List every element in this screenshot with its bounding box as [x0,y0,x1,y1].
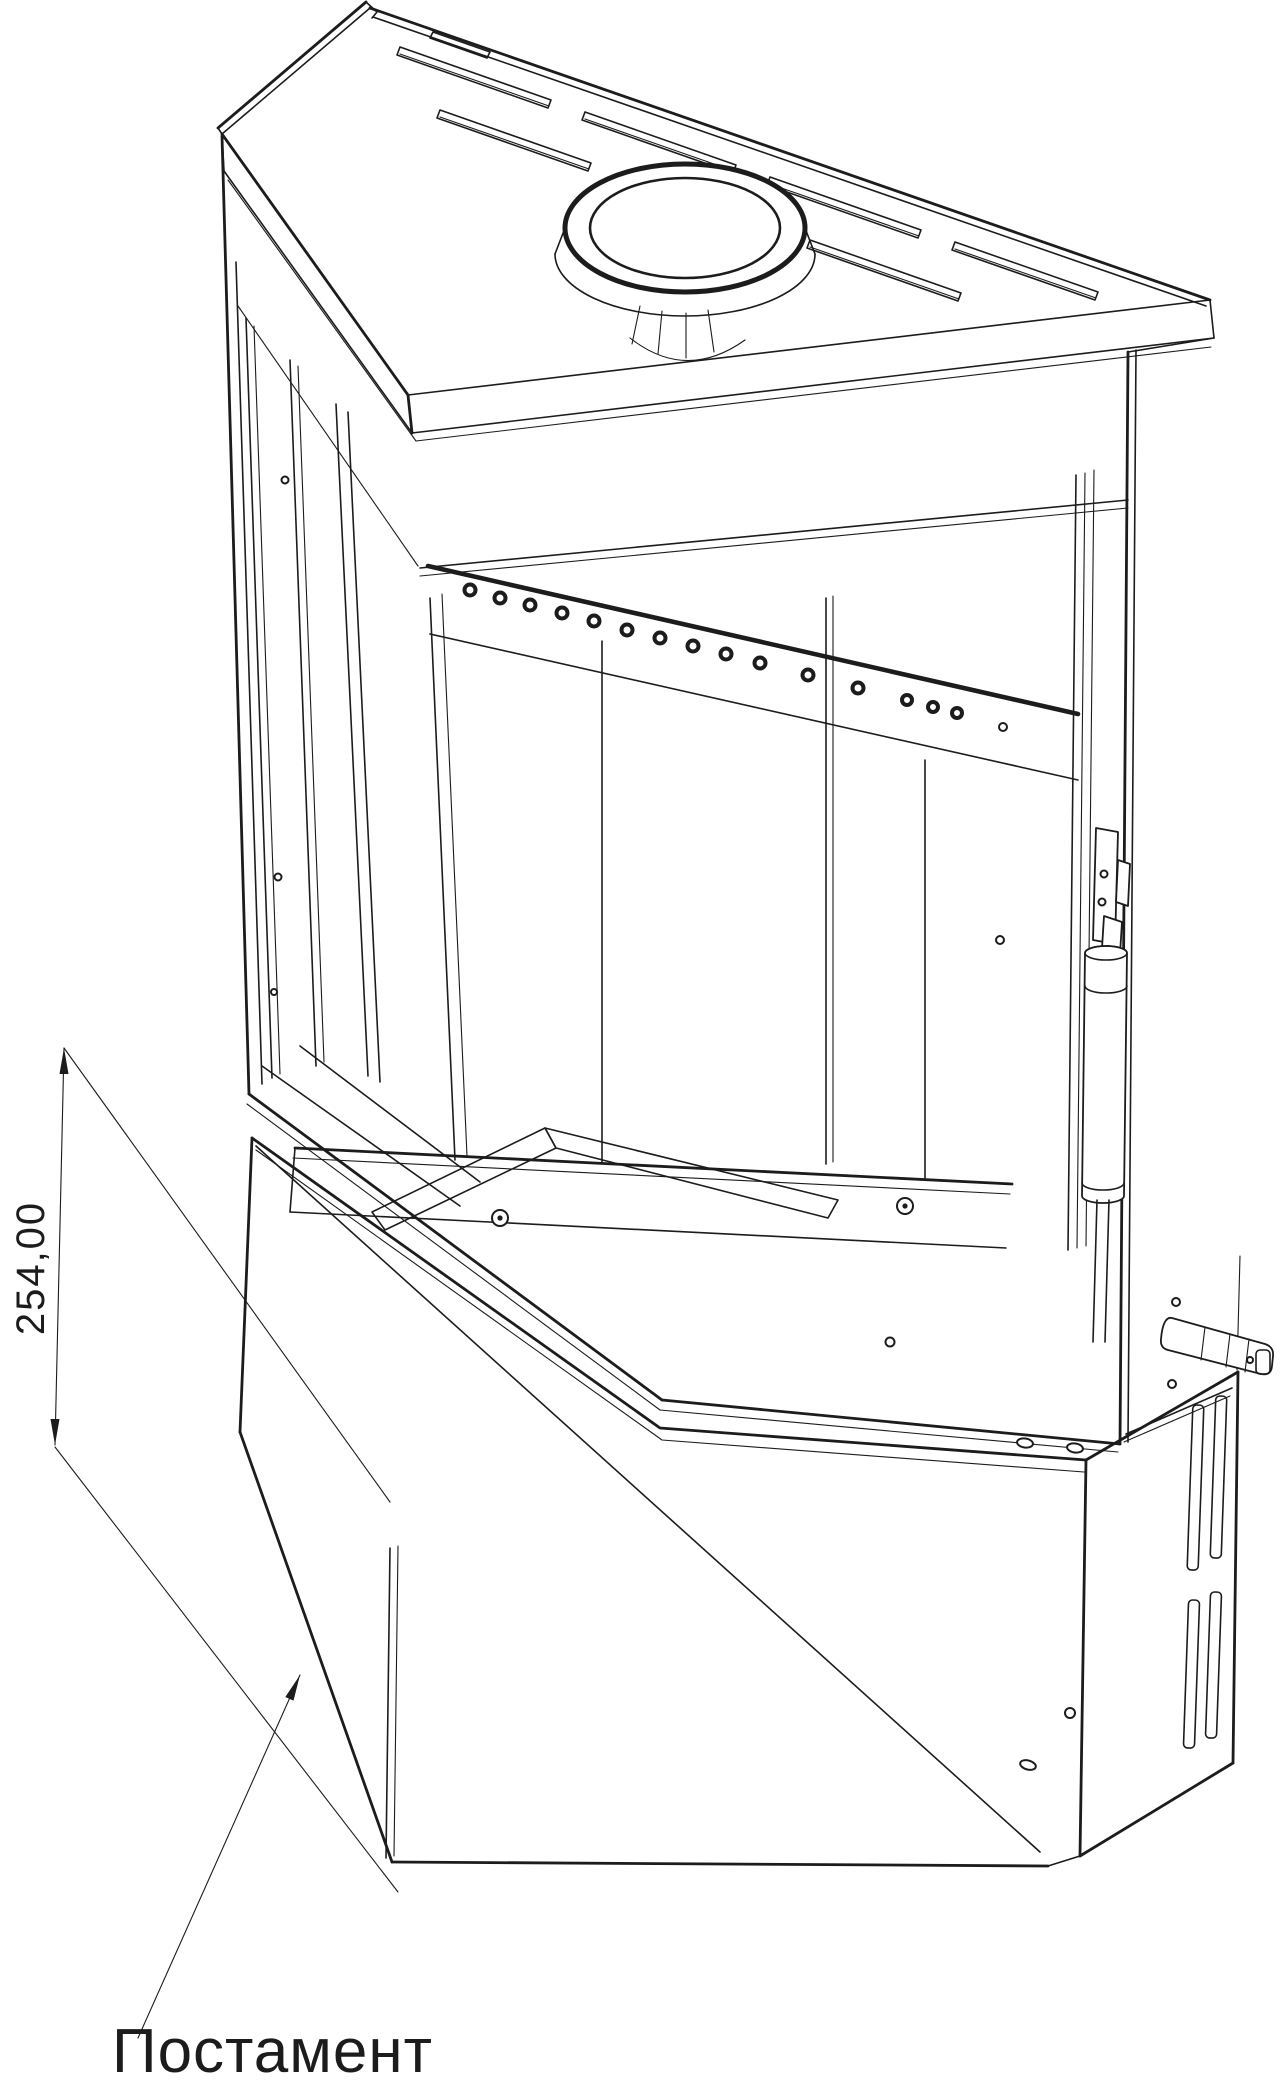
stove-isometric-view: 254,00 Постамент [0,0,1280,2100]
pedestal-slot [1210,1396,1227,1558]
door-left-stile-inner [442,594,467,1156]
handle-rod [1093,1200,1097,1342]
door-right-stile [1068,475,1076,1250]
frame-hole [282,477,289,484]
air-hole [755,658,766,669]
pedestal-lower-left-edge [240,1432,392,1862]
body-bottom-front-edge [662,1400,1120,1444]
leader-arrow [285,1675,300,1701]
air-hole [853,683,864,694]
pedestal-panel-seam [386,1548,390,1858]
air-hole [803,670,814,681]
firebox [262,500,1128,1248]
roof-fascia-left [222,134,412,433]
hinge-screw [996,936,1004,944]
bracket-hole [1172,1298,1180,1306]
dimension-value: 254,00 [9,1201,53,1335]
pedestal-top-edge [252,1138,1086,1460]
window-frame-line [298,366,324,1062]
latch-pin [1101,871,1108,878]
door-sill [290,1148,1012,1248]
sill-inner-edge [293,1158,1010,1194]
pedestal-bottom-corner [1048,1856,1080,1866]
pedestal-label: Постамент [112,2017,433,2086]
left-header-bottom [238,306,418,566]
air-rail-bottom-edge [430,634,1078,780]
top-flange-outer-edge [218,2,366,128]
flue-collar [555,164,815,361]
collar-gusset-rib [658,311,662,354]
latch-tab [1116,860,1130,906]
sill-screw-center [497,1215,502,1220]
pedestal-slot [1183,1600,1199,1748]
vent-slot-shadow [810,247,959,299]
dimension-line [55,1048,64,1445]
air-hole [622,625,633,636]
roof-front-left-edge [222,134,408,395]
bracket-hole [1168,1380,1176,1388]
panel-screw [886,1338,895,1347]
air-hole [721,649,732,660]
air-hole [952,708,962,718]
door-top-edge-inner [420,508,1128,576]
air-hole [655,633,666,644]
vent-slot-shadow [955,249,1096,298]
pedestal-right-back-edge [1233,1372,1238,1763]
pedestal-seam-diagonal [256,1146,1040,1852]
pedestal-top-inner-edge [256,1150,1084,1472]
collar-outer-ring [565,164,805,292]
right-side [886,350,1274,1444]
frame-hole [271,989,277,995]
roof-overhang-underside [1128,338,1214,352]
sill-screw-center [902,1203,907,1208]
pedestal-panel-seam2 [394,1546,398,1856]
air-hole [928,702,938,712]
hinge-screw [999,723,1007,731]
body-bottom-left-edge2 [247,1104,660,1410]
air-hole [525,600,536,611]
handle-rod2 [1105,1200,1109,1342]
fascia-step-front [416,347,1211,441]
damper-bracket [1124,1298,1273,1442]
damper-pin [1247,1357,1253,1363]
door-left-stile [430,598,455,1160]
air-hole [495,593,506,604]
collar-gusset-rib [708,310,714,352]
pedestal-slot [1187,1405,1204,1570]
air-hole [465,585,476,596]
log-retainer-left [372,1128,556,1230]
pedestal-hole [1065,1708,1075,1718]
extension-line-bottom [55,1447,398,1892]
pedestal-vent-slots [1183,1396,1226,1748]
air-rail-top-edge [428,566,1078,714]
pedestal-bottom-edge [392,1862,1048,1866]
pedestal-front-corner-edge [1080,1460,1086,1856]
body-left-outer-edge [222,136,249,1094]
firebox-floor [262,1046,838,1230]
dimension-254: 254,00 [9,1048,398,1892]
air-hole [589,616,600,627]
leader-line [138,1675,300,2038]
latch-pin [1099,899,1106,906]
air-hole [557,608,568,619]
air-hole [688,641,699,652]
body-bottom-left-edge [249,1094,662,1400]
door-top-edge [420,500,1128,568]
technical-drawing: 254,00 Постамент [0,0,1280,2100]
pedestal-oval-hole [1019,1759,1037,1772]
dimension-arrow-bottom [51,1419,60,1445]
flange-oval-hole [1066,1442,1083,1453]
vent-slot-shadow [440,117,589,169]
air-rail [428,566,1078,780]
left-window-column [222,136,418,1094]
roof-front-right-edge [408,300,1210,395]
air-hole [902,695,912,705]
handle-body [1082,946,1127,1203]
window-frame-line [290,360,316,1066]
pedestal-callout: Постамент [112,1675,433,2086]
top-flange-inner-edge [222,8,370,134]
extension-line-top [64,1048,390,1502]
flange-oval-hole [1016,1437,1033,1448]
pedestal-left-edge [240,1138,252,1432]
pedestal-slot [1205,1592,1221,1738]
pedestal-right-bottom-edge [1080,1763,1233,1856]
roof-fascia-front [412,300,1214,433]
frame-hole [275,874,282,881]
